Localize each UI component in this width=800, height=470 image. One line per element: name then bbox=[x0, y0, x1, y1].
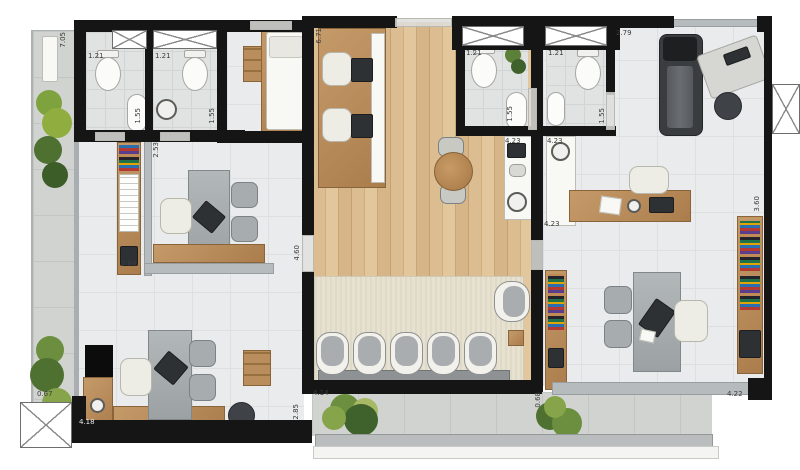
plant bbox=[34, 90, 74, 200]
dimension-label: 2.79 bbox=[616, 29, 632, 37]
cooktop-icon bbox=[507, 192, 527, 212]
office2-exec-chair bbox=[120, 358, 152, 396]
cabinet-sink-icon bbox=[90, 398, 105, 413]
ventilation-shaft bbox=[462, 26, 524, 46]
wall bbox=[302, 272, 314, 394]
office2-guest-chair bbox=[189, 340, 216, 367]
office3-exec-chair bbox=[674, 300, 708, 342]
ventilation-shaft bbox=[112, 30, 147, 49]
wall bbox=[72, 420, 312, 443]
bathroom-sink-icon bbox=[547, 92, 565, 126]
dimension-label: 7.05 bbox=[59, 32, 67, 48]
drawer-unit bbox=[243, 350, 271, 386]
lounge-chair bbox=[464, 332, 497, 375]
dimension-label: 3.60 bbox=[753, 196, 761, 212]
thin-wall bbox=[74, 142, 79, 422]
office2-black-cabinet bbox=[85, 345, 113, 377]
ventilation-shaft bbox=[153, 30, 217, 49]
treadmill-belt bbox=[667, 66, 693, 128]
books bbox=[119, 145, 139, 171]
wall bbox=[74, 20, 86, 142]
notepad-icon bbox=[599, 196, 622, 216]
dimension-label: 1.55 bbox=[506, 106, 514, 122]
office2-guest-chair bbox=[189, 374, 216, 401]
dimension-label: 4.23 bbox=[544, 220, 560, 228]
dimension-label: 1.21 bbox=[548, 49, 564, 57]
wall bbox=[606, 47, 615, 95]
gym-window bbox=[673, 19, 765, 27]
radio-icon bbox=[649, 197, 674, 213]
plant bbox=[322, 390, 400, 436]
dimension-label: 2.85 bbox=[292, 404, 300, 420]
dimension-label: 1.21 bbox=[88, 52, 104, 60]
dimension-label: 4.18 bbox=[79, 418, 95, 426]
plant bbox=[505, 47, 527, 77]
kettle-icon bbox=[509, 164, 526, 177]
floor-plan: 7.05 1.21 1.21 1.55 1.55 2.53 6.71 1.21 … bbox=[0, 0, 800, 470]
toilet-icon bbox=[95, 57, 121, 91]
exterior-shaft bbox=[20, 402, 72, 448]
ventilation-shaft bbox=[545, 26, 607, 46]
dimension-label: 1.21 bbox=[466, 49, 482, 57]
bed-pillow bbox=[269, 36, 303, 58]
right-armchair bbox=[629, 166, 669, 194]
books bbox=[548, 274, 564, 330]
lounge-chair bbox=[390, 332, 423, 375]
desk-monitor-icon bbox=[351, 114, 373, 138]
wall bbox=[308, 380, 542, 394]
books bbox=[740, 221, 760, 271]
exterior-shaft bbox=[772, 84, 800, 134]
door bbox=[531, 240, 543, 270]
clock-icon bbox=[627, 199, 641, 213]
toilet-icon bbox=[575, 56, 601, 90]
office1-credenza bbox=[153, 244, 265, 263]
coffee-machine-icon bbox=[507, 143, 526, 158]
wall bbox=[616, 16, 674, 28]
lounge-chair bbox=[316, 332, 349, 375]
desk-monitor-icon bbox=[351, 58, 373, 82]
lounge-chair bbox=[427, 332, 460, 375]
office3-guest-chair bbox=[604, 320, 632, 348]
printer-icon bbox=[739, 330, 761, 358]
corridor-bench bbox=[42, 36, 58, 82]
dimension-label: 2.88 bbox=[121, 260, 137, 268]
door bbox=[302, 235, 314, 272]
toilet-icon bbox=[182, 57, 208, 91]
pouf bbox=[714, 92, 742, 120]
toilet-icon bbox=[471, 53, 497, 88]
dimension-label: 1.55 bbox=[208, 108, 216, 124]
shelf-boxes bbox=[119, 174, 139, 232]
plant bbox=[536, 396, 588, 438]
office1-exec-chair bbox=[160, 198, 192, 234]
dimension-label: 2.53 bbox=[152, 142, 160, 158]
glass-partition bbox=[144, 140, 152, 276]
round-sink-icon bbox=[156, 99, 177, 120]
lounge-chair bbox=[353, 332, 386, 375]
bedside-shelf bbox=[243, 46, 263, 82]
studio-chair bbox=[322, 108, 352, 142]
shelf-box-icon bbox=[548, 348, 564, 368]
door bbox=[250, 21, 292, 30]
dimension-label: 0.67 bbox=[37, 390, 53, 398]
glass-window-wall bbox=[552, 382, 750, 395]
rug-side-table bbox=[508, 330, 524, 346]
lounge-armchair bbox=[494, 281, 530, 322]
dimension-label: 4.23 bbox=[505, 137, 521, 145]
door bbox=[528, 88, 537, 130]
dimension-label: 4.23 bbox=[547, 137, 563, 145]
door bbox=[606, 92, 615, 130]
dimension-label: 4.60 bbox=[293, 245, 301, 261]
dimension-label: 4.22 bbox=[727, 390, 743, 398]
studio-desk-top bbox=[371, 33, 385, 183]
office1-guest-chair bbox=[231, 182, 258, 208]
books bbox=[740, 276, 760, 310]
office3-guest-chair bbox=[604, 286, 632, 314]
dimension-label: 1.55 bbox=[598, 108, 606, 124]
round-table bbox=[434, 152, 473, 191]
wall bbox=[748, 378, 772, 400]
wall bbox=[302, 16, 397, 28]
door bbox=[95, 132, 125, 141]
wall bbox=[217, 30, 227, 134]
treadmill-console bbox=[663, 37, 697, 61]
studio-chair bbox=[322, 52, 352, 86]
door bbox=[395, 18, 452, 27]
dimension-label: 4.14 bbox=[313, 389, 329, 397]
wall bbox=[764, 24, 772, 392]
wall bbox=[294, 131, 314, 143]
glass-partition bbox=[144, 263, 274, 274]
door bbox=[160, 132, 190, 141]
dimension-label: 1.55 bbox=[134, 108, 142, 124]
dimension-label: 1.21 bbox=[155, 52, 171, 60]
office1-guest-chair bbox=[231, 216, 258, 242]
planter-sill bbox=[313, 446, 719, 459]
dimension-label: 6.71 bbox=[315, 28, 323, 44]
dimension-label: 0.68 bbox=[534, 392, 542, 408]
